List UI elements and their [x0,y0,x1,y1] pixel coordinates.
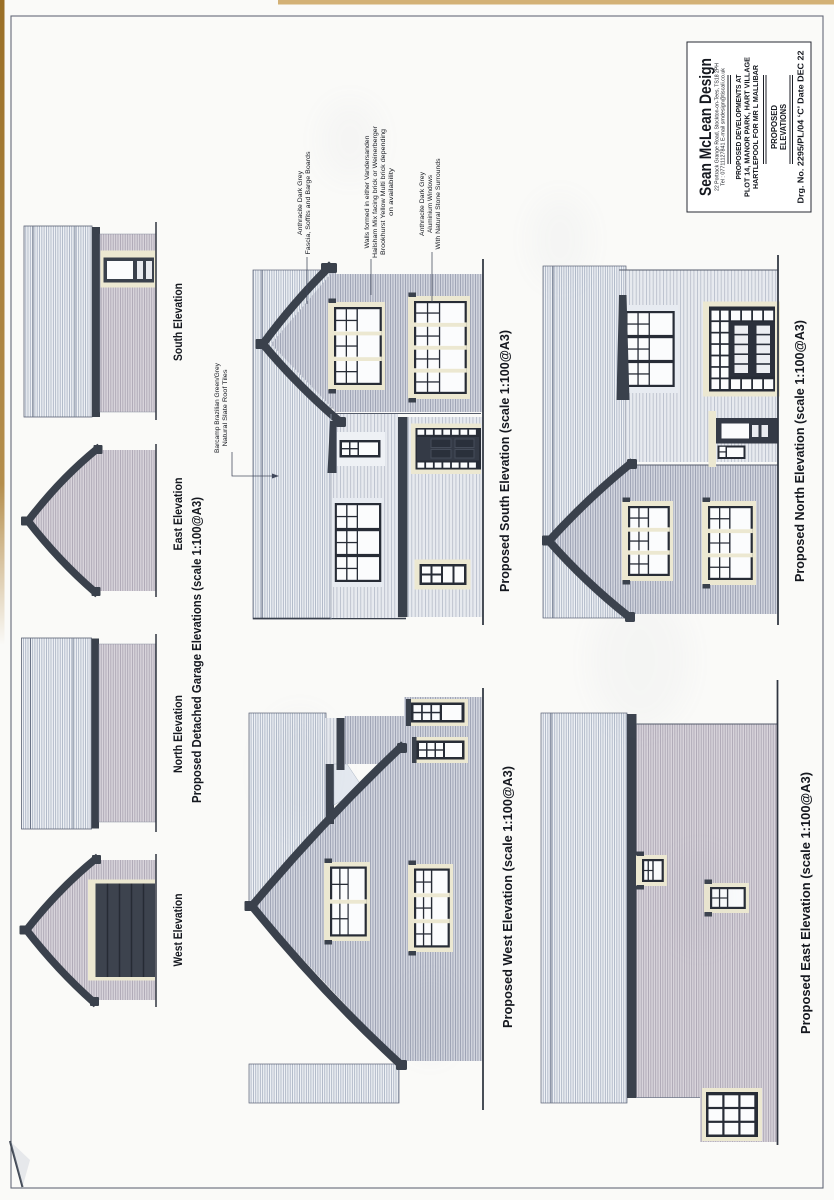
svg-text:Proposed Detached Garage Eleva: Proposed Detached Garage Elevations (sca… [189,497,204,803]
svg-text:PROPOSED: PROPOSED [770,105,779,149]
svg-text:ELEVATIONS: ELEVATIONS [779,103,788,150]
svg-text:Fascia, Soffits and Barge Boar: Fascia, Soffits and Barge Boards [305,152,312,255]
svg-text:Proposed East Elevation (scale: Proposed East Elevation (scale 1:100@A3) [798,772,813,1034]
svg-text:Tel : 07711127841 E-mail smd: Tel : 07711127841 E-mail smdesign@tiscal… [721,67,727,186]
svg-text:Drg. No. 2295/PL/04 ‘C’ D: Drg. No. 2295/PL/04 ‘C’ Date DEC 22 [796,50,806,203]
svg-text:West Elevation: West Elevation [173,894,185,967]
svg-text:Proposed North Elevation (scal: Proposed North Elevation (scale 1:100@A3… [792,320,807,582]
svg-text:HARTLEPOOL FOR MR L MALLIBAR: HARTLEPOOL FOR MR L MALLIBAR [751,64,760,189]
svg-text:Anthracite Dark Grey: Anthracite Dark Grey [419,171,426,236]
svg-text:North Elevation: North Elevation [173,695,185,773]
svg-text:Sean McLean Design: Sean McLean Design [697,58,715,196]
svg-text:Proposed West Elevation (scale: Proposed West Elevation (scale 1:100@A3) [500,766,515,1028]
svg-text:Barcamp Brazilian Green/Grey: Barcamp Brazilian Green/Grey [214,362,221,453]
svg-text:Anthracite Dark Grey: Anthracite Dark Grey [297,170,304,235]
svg-text:Natural Slate Roof Tiles: Natural Slate Roof Tiles [222,370,229,447]
svg-text:East Elevation: East Elevation [173,478,185,551]
svg-text:South Elevation: South Elevation [173,283,185,361]
svg-text:Proposed South Elevation (scal: Proposed South Elevation (scale 1:100@A3… [497,330,512,592]
svg-text:on availability: on availability [388,167,395,216]
svg-text:With Natural Stone Surrounds: With Natural Stone Surrounds [435,159,442,250]
svg-text:Aluminium Windows: Aluminium Windows [427,175,434,233]
svg-text:Brookhurst Yellow Multi brick: Brookhurst Yellow Multi brick depending [380,129,387,255]
